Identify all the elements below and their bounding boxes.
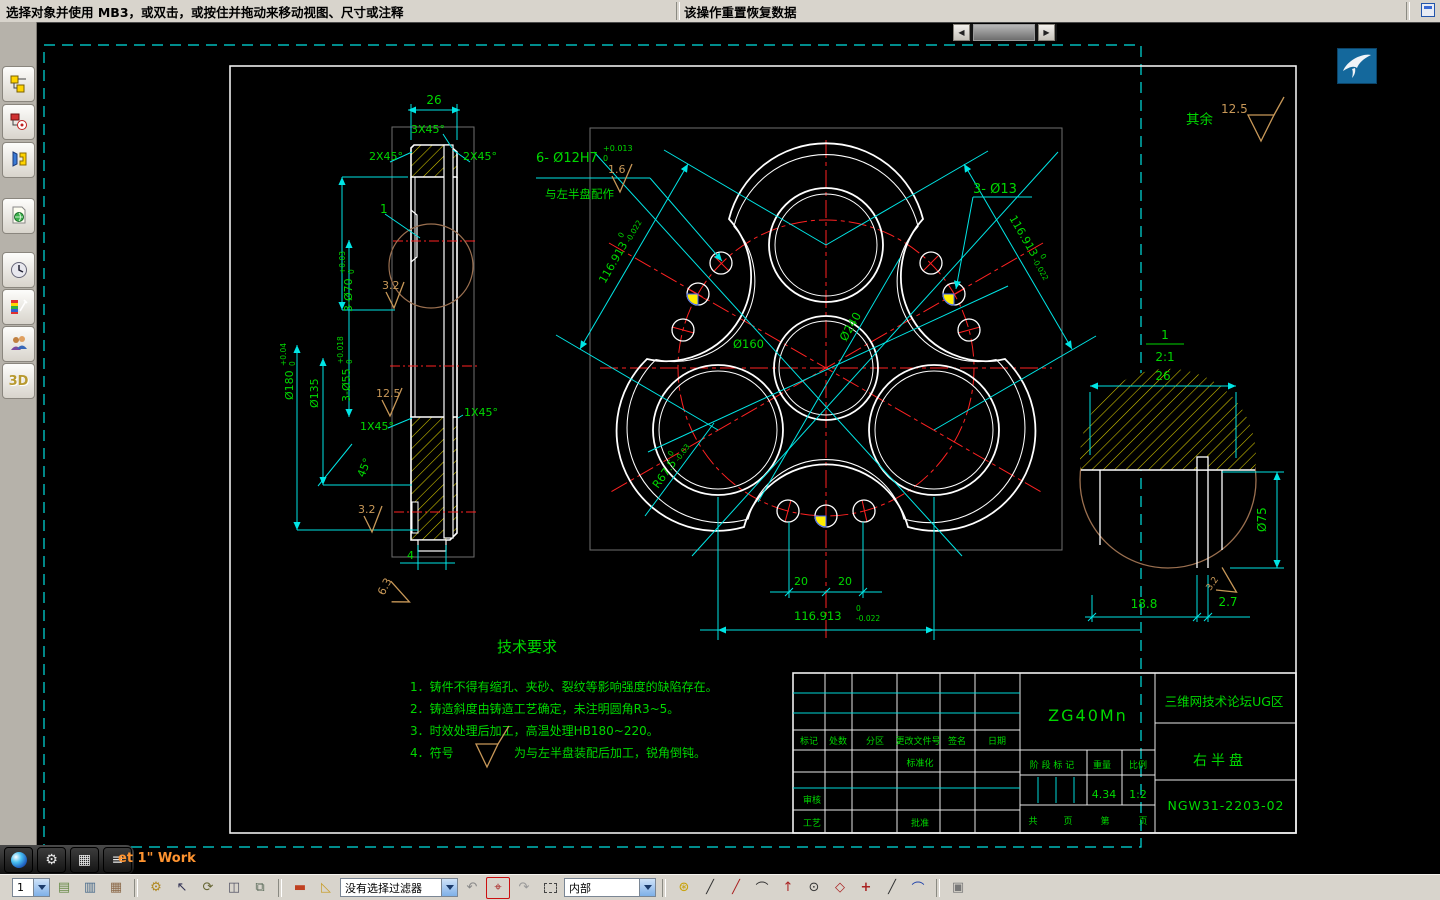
status-action-hint: 该操作重置恢复数据 [684,0,797,22]
tech-req-4-prefix: 4．符号 [410,745,454,760]
toolbar-separator [278,879,282,897]
dim-d135: Ø135 [308,378,321,408]
brand-logo [1337,48,1377,84]
people-icon [9,334,29,354]
detail-width: 26 [1155,369,1170,383]
snap-burst-button[interactable]: ⊛ [672,877,696,899]
tb-checker: 审核 [803,794,821,806]
tech-req-title: 技术要求 [497,638,557,656]
toolbar-separator [936,879,940,897]
3d-input-button[interactable]: 3D [2,363,35,399]
tb-h-date: 日期 [988,736,1006,747]
tech-req-1: 1．铸件不得有缩孔、夹砂、裂纹等影响强度的缺陷存在。 [410,679,718,694]
3d-icon: 3D [9,374,29,389]
selection-filter-value: 没有选择过滤器 [345,880,422,896]
assembly-navigator-icon [9,74,29,94]
dim-od180-tol-dn: 0 [288,361,297,366]
tb-standardization: 标准化 [906,757,933,769]
dim-od180: Ø180 [283,370,296,400]
tb-sheet-b: 页 [1063,816,1072,827]
dim-holes13: 3- Ø13 [973,182,1017,197]
general-note-prefix: 其余 [1186,111,1214,128]
select-tool-button[interactable]: ↖ [170,877,194,899]
rotate-view-button[interactable]: ⟳ [196,877,220,899]
tb-stage-label: 阶 段 标 记 [1030,759,1075,771]
layer-category-button[interactable]: ▦ [104,877,128,899]
scope-combo-value: 内部 [569,880,591,896]
toolbar-separator [134,879,138,897]
swallow-icon [1338,49,1374,81]
chevron-down-icon[interactable] [441,879,457,896]
snap-arc-button[interactable]: ⌒ [750,877,774,899]
dim-dist-bottom-td: -0.022 [856,614,880,623]
redo-button[interactable]: ↷ [512,877,536,899]
snap-plus-button[interactable]: + [854,877,878,899]
detail-scale: 2:1 [1155,350,1174,364]
status-divider-2 [1406,2,1410,20]
pan-view-button[interactable]: ◫ [222,877,246,899]
tech-req-3: 3．时效处理后加工，高温处理HB180~220。 [410,723,659,738]
snap-center-button[interactable]: ⊙ [802,877,826,899]
app-logo-button[interactable] [4,847,33,873]
roles-button[interactable] [2,326,35,362]
snap-curve-button[interactable]: ⌒ [906,877,930,899]
constraint-navigator-icon [9,112,29,132]
detail-rib: 2.7 [1218,595,1237,609]
dim-dist-bottom-tu: 0 [856,604,861,613]
dim-bore55-tol-dn: 0 [345,359,354,364]
scroll-left-button[interactable]: ◀ [953,24,970,41]
dim-holes12-note: 与左半盘配作 [545,187,614,201]
dim-holes12-tol-up: +0.013 [603,144,633,153]
drawing-svg: 26 3X45° 2X45° 2X45° 1 3-Ø70 +0.03 0 3-Ø… [0,0,1440,900]
rainbow-wand-icon [9,297,29,317]
tb-approver: 批准 [911,817,929,829]
dim-groove: 4 [407,549,414,562]
marquee-select-button[interactable] [538,877,562,899]
dock-toolbar: ⚙ ▦ ≡ [0,845,134,875]
fin-3-2b: 3.2 [358,503,376,516]
fin-3-2a: 3.2 [382,279,400,292]
zoom-window-button[interactable]: ⧉ [248,877,272,899]
fin-12-5: 12.5 [376,387,401,400]
fin-1-6: 1.6 [608,163,626,176]
chevron-down-icon[interactable] [33,879,49,896]
slope-button[interactable]: ◺ [314,877,338,899]
tb-weight: 4.34 [1092,788,1117,801]
sphere-icon [11,852,27,868]
detail-len: 18.8 [1131,597,1158,611]
scroll-thumb[interactable] [973,24,1035,41]
snap-intersection-button[interactable]: ↑ [776,877,800,899]
history-button[interactable] [2,252,35,288]
tb-company: 三维网技术论坛UG区 [1165,694,1284,709]
tb-h-file: 更改文件号 [895,735,940,747]
toolbar-separator [662,879,666,897]
scope-combo[interactable]: 内部 [564,878,656,897]
constraint-navigator-button[interactable] [2,104,35,140]
detail-label: 1 [1161,328,1169,342]
visualization-button[interactable] [2,289,35,325]
dim-bore55: 3-Ø55 [340,368,353,402]
scroll-right-button[interactable]: ▶ [1038,24,1055,41]
grid-button[interactable]: ▦ [70,847,99,873]
bottom-toolbar: 1 ▤ ▥ ▦ ⚙ ↖ ⟳ ◫ ⧉ ▬ ◺ 没有选择过滤器 ↶ ⌖ ↷ 内部 ⊛… [0,874,1440,900]
dim-off-l: 20 [794,575,808,588]
layer-combo[interactable]: 1 [12,878,50,897]
snap-endpoint-button[interactable]: ╱ [698,877,722,899]
dim-ch1l: 1X45° [360,420,394,433]
status-message: 选择对象并使用 MB3，或双击，或按住并拖动来移动视图、尺寸或注释 [0,2,404,21]
tb-process: 工艺 [803,818,821,829]
dim-ch1r: 1X45° [464,406,498,419]
top-scrollbar[interactable]: ◀ ▶ [953,24,1057,41]
snap-line-button[interactable]: ╱ [880,877,904,899]
undo-button[interactable]: ↶ [460,877,484,899]
dim-off-r: 20 [838,575,852,588]
dim-bore55-tol-up: +0.018 [336,336,345,364]
detail-d75: Ø75 [1255,507,1269,532]
tb-material: ZG40Mn [1048,706,1128,725]
snap-midpoint-button[interactable]: ╱ [724,877,748,899]
chevron-down-icon[interactable] [639,879,655,896]
window-icon[interactable] [1421,3,1435,17]
reuse-library-icon [9,206,29,226]
layer-visible-button[interactable]: ▤ [52,877,76,899]
snap-point-button[interactable]: ⌖ [486,877,510,899]
dim-chamfer-left: 2X45° [369,150,403,163]
part-navigator-button[interactable] [2,142,35,178]
dim-od180-tol-up: +0.04 [279,343,288,366]
tb-weight-label: 重量 [1093,759,1111,771]
general-note-roughness: 12.5 [1221,102,1248,116]
dim-bore70-tol-dn: 0 [347,269,356,274]
dim-dist-bottom: 116.913 [794,609,842,623]
snap-quadrant-button[interactable]: ◇ [828,877,852,899]
reuse-library-button[interactable] [2,198,35,234]
tb-sheet-a: 共 [1028,816,1037,827]
selection-filter-combo[interactable]: 没有选择过滤器 [340,878,458,897]
measure-button[interactable]: ▬ [288,877,312,899]
tech-req-4-suffix: 为与左半盘装配后加工，锐角倒钝。 [514,745,706,760]
tb-sheet-d: 页 [1138,816,1147,827]
clock-icon [9,260,29,280]
tb-h-count: 处数 [829,735,847,747]
dim-side-width: 26 [426,93,441,107]
dim-chamfer-top: 3X45° [411,123,445,136]
tb-h-sign: 签名 [948,735,966,747]
solid-cube-button[interactable]: ▣ [946,877,970,899]
sheet-tab-label[interactable]: et 1" Work [118,851,196,866]
tb-h-zone: 分区 [866,736,884,747]
status-divider [676,2,680,20]
tb-scale: 1:2 [1129,788,1147,801]
layer-combo-value: 1 [17,881,24,894]
dim-holes12: 6- Ø12H7 [536,151,598,166]
tb-h-mark: 标记 [800,735,818,747]
tb-sheet-c: 第 [1100,815,1109,827]
layer-work-button[interactable]: ▥ [78,877,102,899]
key-tool-button[interactable]: ⚙ [144,877,168,899]
dim-bore70: 3-Ø70 [342,278,355,312]
dim-holes12-tol-dn: 0 [603,154,608,163]
tb-part-name: 右半盘 [1193,752,1247,769]
tb-scale-label: 比例 [1129,759,1147,771]
marquee-icon [544,883,557,893]
left-toolbar: 3D [0,22,37,874]
status-bar: 选择对象并使用 MB3，或双击，或按住并拖动来移动视图、尺寸或注释 该操作重置恢… [0,0,1440,23]
settings-button[interactable]: ⚙ [37,847,66,873]
assembly-navigator-button[interactable] [2,66,35,102]
part-navigator-icon [9,150,29,170]
tb-drawing-no: NGW31-2203-02 [1167,798,1284,813]
detail-ref-label: 1 [380,202,388,216]
dim-bore70-tol-up: +0.03 [338,251,347,274]
dim-d160: Ø160 [733,337,764,351]
dim-chamfer-right: 2X45° [463,150,497,163]
tech-req-2: 2．铸造斜度由铸造工艺确定，未注明圆角R3~5。 [410,701,679,716]
